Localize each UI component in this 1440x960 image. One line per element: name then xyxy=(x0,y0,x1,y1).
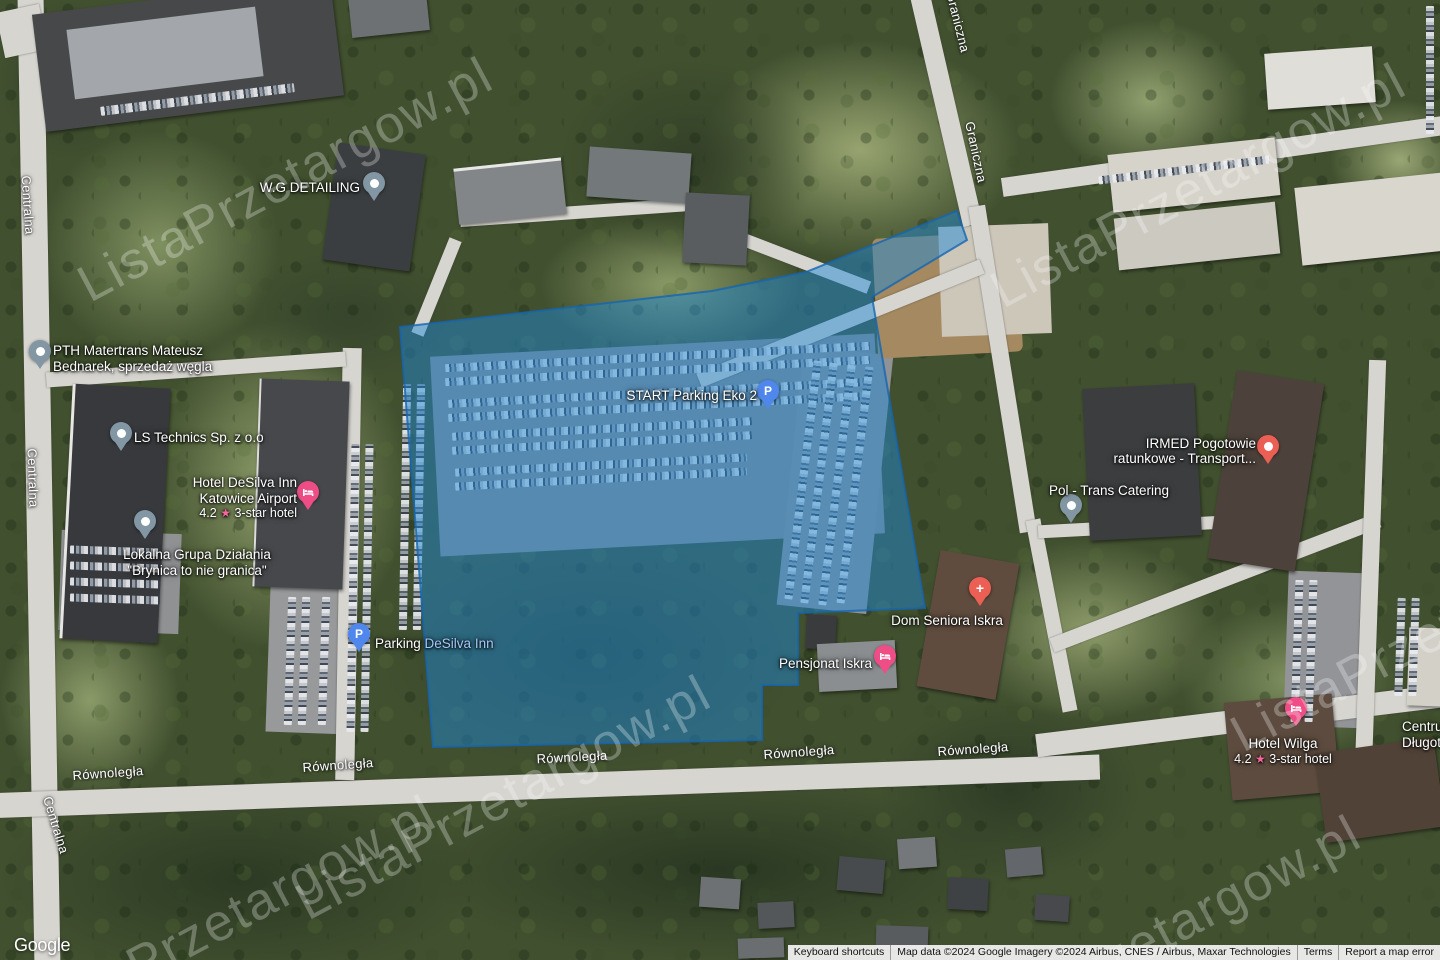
attribution-bar: Keyboard shortcuts Map data ©2024 Google… xyxy=(788,945,1440,960)
rating-suffix: 3-star hotel xyxy=(234,506,297,520)
poi-line: Katowice Airport xyxy=(193,491,297,507)
poi-linked-name: DeSilva Inn xyxy=(425,636,494,651)
star-icon: ★ xyxy=(1255,752,1266,766)
pin-dom-seniora-iskra[interactable]: + xyxy=(969,577,991,599)
label-lokalna-grupa[interactable]: Lokalna Grupa Działania "Brynica to nie … xyxy=(123,547,271,578)
google-logo[interactable]: Google xyxy=(14,936,70,954)
label-dom-seniora-iskra[interactable]: Dom Seniora Iskra xyxy=(891,613,1003,629)
label-start-parking-eko2[interactable]: START Parking Eko 2 xyxy=(626,388,757,404)
poi-line: Hotel DeSilva Inn xyxy=(193,475,297,491)
label-ls-technics[interactable]: LS Technics Sp. z o.o xyxy=(134,430,264,446)
rating-suffix: 3-star hotel xyxy=(1269,752,1332,766)
poi-line: Hotel Wilga xyxy=(1234,736,1332,752)
street-label-rownolegla: Równoległa xyxy=(536,749,608,766)
poi-line: Długoterm xyxy=(1402,735,1440,751)
terms-link[interactable]: Terms xyxy=(1297,945,1339,960)
street-label-centralna: Centralna xyxy=(19,175,36,235)
pin-irmed[interactable] xyxy=(1257,435,1279,457)
rating-value: 4.2 xyxy=(199,506,216,520)
rating-value: 4.2 xyxy=(1234,752,1251,766)
rating-line: 4.2 ★ 3-star hotel xyxy=(193,506,297,522)
bed-icon xyxy=(879,652,891,661)
generic-poi-icon xyxy=(370,179,379,188)
map-canvas[interactable]: Centralna Centralna Centralna Graniczna … xyxy=(0,0,1440,960)
report-map-error-link[interactable]: Report a map error xyxy=(1338,945,1440,960)
pin-hotel-desilva[interactable] xyxy=(297,481,319,503)
parking-icon: P xyxy=(355,628,363,640)
poi-line: Parking xyxy=(375,636,421,651)
street-label-centralna: Centralna xyxy=(25,448,40,507)
star-icon: ★ xyxy=(220,506,231,520)
generic-poi-icon xyxy=(141,517,150,526)
generic-poi-icon xyxy=(1264,442,1273,451)
pin-start-parking-eko2[interactable]: P xyxy=(757,380,779,402)
map-data-attribution: Map data ©2024 Google Imagery ©2024 Airb… xyxy=(890,945,1297,960)
pin-wg-detailing[interactable] xyxy=(363,172,385,194)
poi-line: ratunkowe - Transport... xyxy=(1113,452,1256,467)
bed-icon xyxy=(1290,704,1302,713)
pin-parking-desilva[interactable]: P xyxy=(348,623,370,645)
rating-line: 4.2 ★ 3-star hotel xyxy=(1234,752,1332,768)
pin-lokalna-grupa[interactable] xyxy=(134,510,156,532)
pin-pensjonat-iskra[interactable] xyxy=(874,645,896,667)
keyboard-shortcuts-link[interactable]: Keyboard shortcuts xyxy=(788,945,890,960)
bed-icon xyxy=(302,488,314,497)
label-wg-detailing[interactable]: W.G DETAILING xyxy=(260,180,360,196)
health-cross-icon: + xyxy=(976,581,984,595)
label-parking-desilva[interactable]: Parking DeSilva Inn xyxy=(375,636,494,652)
poi-line: Centru xyxy=(1402,719,1440,735)
poi-line: "Brynica to nie granica" xyxy=(123,563,271,579)
label-centrum-dlugoterm[interactable]: Centru Długoterm xyxy=(1402,719,1440,750)
label-hotel-desilva[interactable]: Hotel DeSilva Inn Katowice Airport 4.2 ★… xyxy=(193,475,297,522)
pin-hotel-wilga[interactable] xyxy=(1285,697,1307,719)
generic-poi-icon xyxy=(36,347,45,356)
label-pensjonat-iskra[interactable]: Pensjonat Iskra xyxy=(779,656,872,672)
generic-poi-icon xyxy=(117,429,126,438)
poi-line: PTH Matertrans Mateusz xyxy=(53,343,212,359)
label-pth-matertrans[interactable]: PTH Matertrans Mateusz Bednarek, sprzeda… xyxy=(53,343,212,374)
label-pol-trans-catering[interactable]: Pol - Trans Catering xyxy=(1049,483,1169,499)
parking-icon: P xyxy=(764,385,772,397)
poi-line: Bednarek, sprzedaż węgla xyxy=(53,359,212,375)
generic-poi-icon xyxy=(1067,501,1076,510)
poi-line: Lokalna Grupa Działania xyxy=(123,547,271,563)
label-irmed[interactable]: IRMED Pogotowie ratunkowe - Transport... xyxy=(1113,437,1256,466)
pin-pth-matertrans[interactable] xyxy=(29,340,51,362)
pin-ls-technics[interactable] xyxy=(110,422,132,444)
poi-line: IRMED Pogotowie xyxy=(1113,437,1256,452)
label-hotel-wilga[interactable]: Hotel Wilga 4.2 ★ 3-star hotel xyxy=(1234,736,1332,767)
